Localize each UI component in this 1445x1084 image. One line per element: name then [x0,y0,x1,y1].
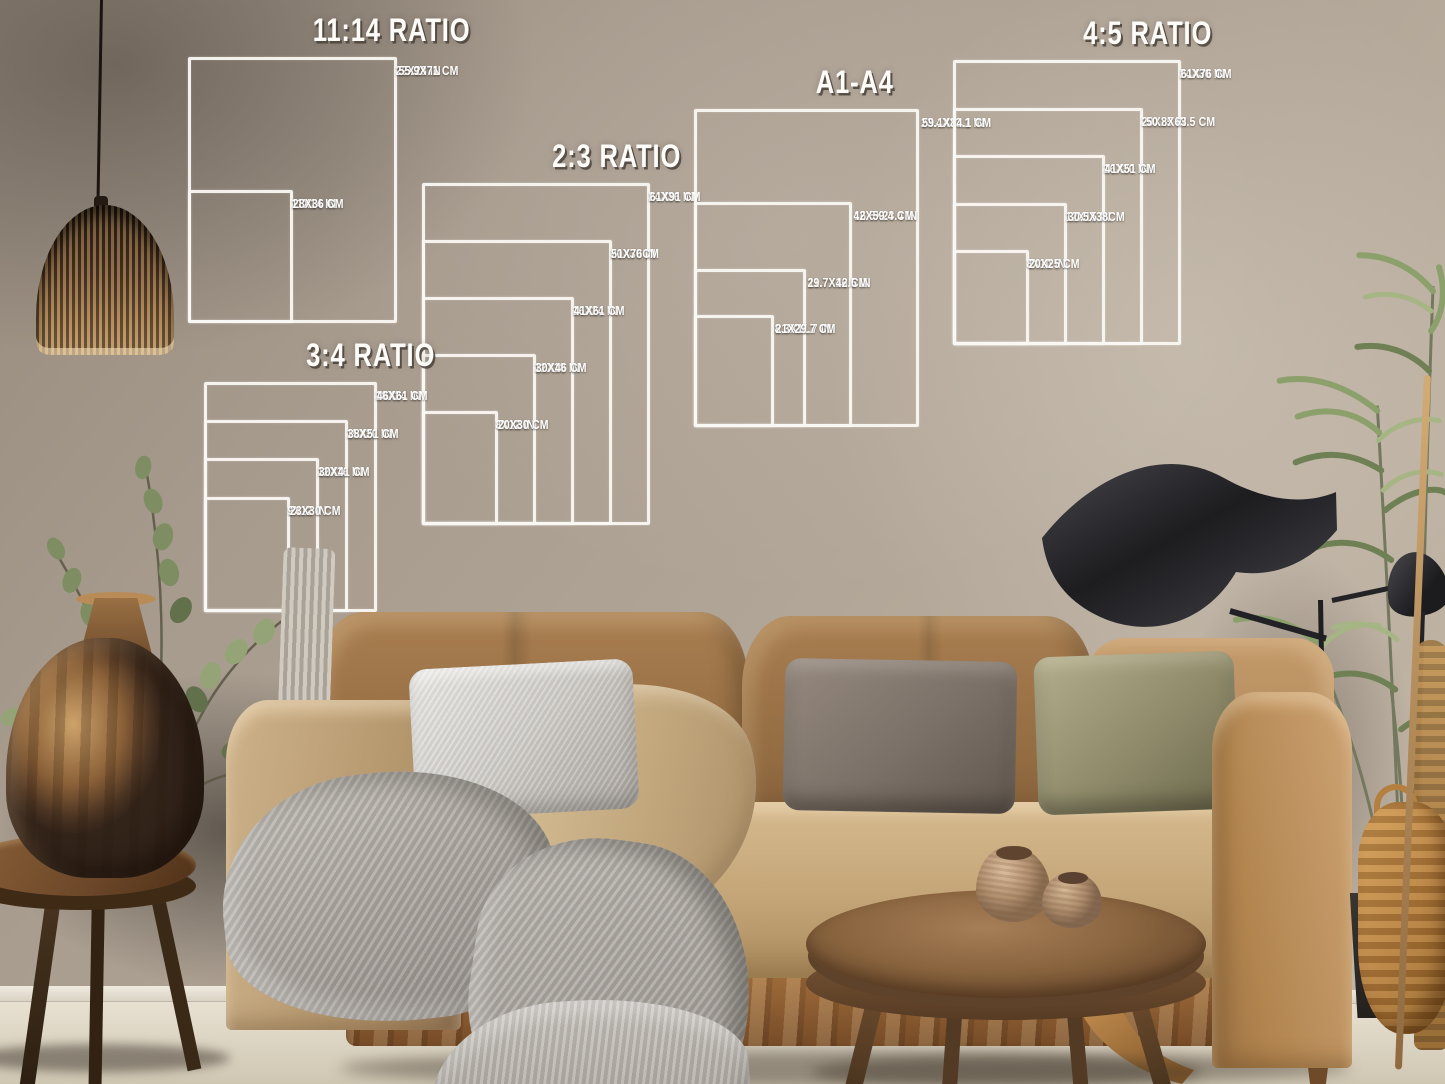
ceramic-vase-opening [996,846,1032,860]
floor-lamp-sculptural-shade [1038,446,1338,661]
coffee-table-shadow [812,1056,1202,1084]
size-rect-11x14-in: 11X14 IN28X36 CM [188,190,293,323]
olive-pillow [1033,651,1238,816]
ceramic-vase-opening [1058,872,1088,884]
sofa-right-arm [1212,692,1352,1068]
size-rect-8x10-in: 8X10 IN20X25 CM [953,250,1029,345]
living-room-scene: 11:14 RATIO22X28 IN55.9X71 CM11X14 IN28X… [0,0,1445,1084]
size-rect-8x12-in: 8X12 IN20X30 CM [422,411,498,525]
gray-pillow [783,658,1018,814]
size-rect-8.3x11.7-in: 8.3X11.7 IN21X29.7 CM [694,315,774,427]
